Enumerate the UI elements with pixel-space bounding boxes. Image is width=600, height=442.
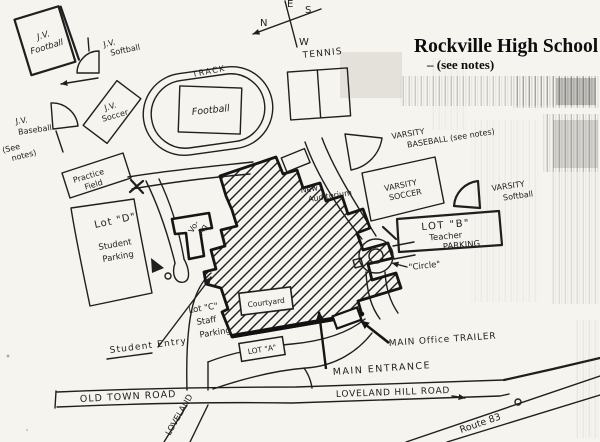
- compass-e: E: [287, 0, 293, 10]
- compass-n: N: [260, 18, 267, 29]
- jv-softball-foul-line: [88, 38, 89, 51]
- compass-s: S: [305, 5, 311, 16]
- page-title-note: – (see notes): [426, 57, 494, 72]
- campus-map: N S E W Rockville High School – (see not…: [0, 0, 600, 442]
- scanned-campus-map-page: N S E W Rockville High School – (see not…: [0, 0, 600, 442]
- compass-w: W: [299, 37, 309, 48]
- jv-baseball-label-1: J.V.: [14, 115, 28, 126]
- old-town-road-end-cap: [55, 391, 56, 408]
- page-title: Rockville High School: [414, 36, 599, 57]
